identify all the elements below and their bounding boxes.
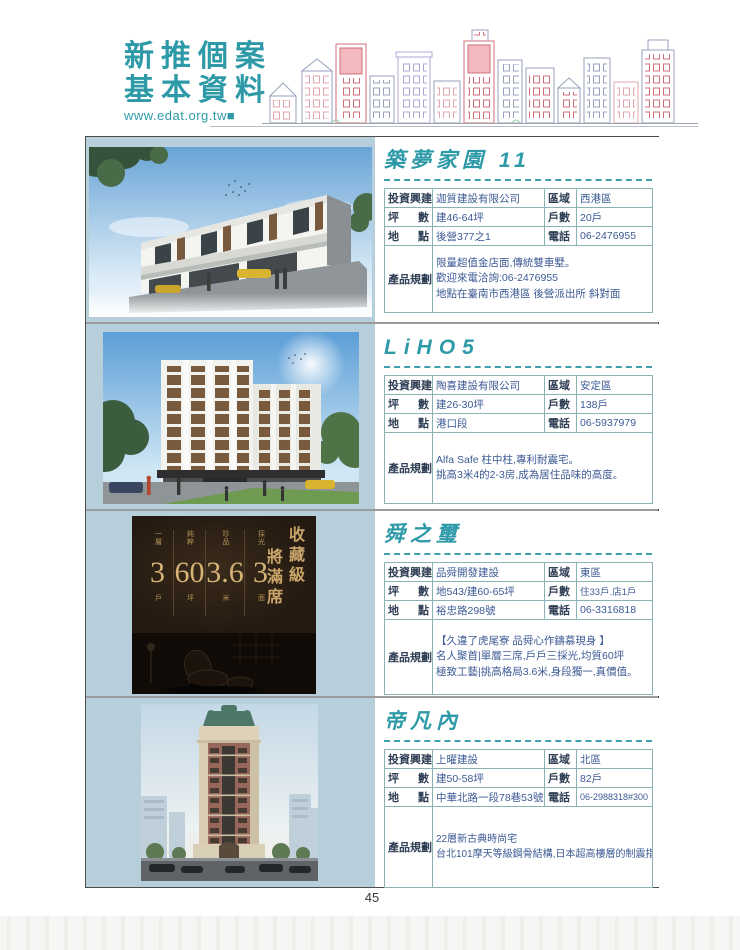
label-units: 戶數 — [545, 208, 577, 227]
listing-row-3: 收藏級 將滿席 一層 3 戶 純粹 60 坪 — [86, 511, 658, 698]
value-phone: 06-2476955 — [577, 227, 653, 246]
label-phone: 電話 — [545, 414, 577, 433]
label-region: 區域 — [545, 189, 577, 208]
plan-line: Alfa Safe 柱中柱,專利耐震宅。 — [436, 453, 649, 469]
stat-label-bottom: 戶 — [153, 594, 163, 616]
value-phone: 06-2988318#300 — [577, 788, 653, 807]
label-size2: 數 — [418, 209, 429, 225]
listing-photo-panel-4 — [86, 698, 375, 887]
label-size2: 數 — [418, 770, 429, 786]
value-location: 裕忠路298號 — [433, 601, 545, 620]
plan-line: 極致工藝|挑高格局3.6米,身段獨一,真價值。 — [436, 665, 649, 681]
listing-spec-table: 投資興建 上曜建設 區域 北區 坪數 建50-58坪 戶數 82戶 地點 中華北… — [384, 749, 653, 888]
stat-number: 3.6 — [206, 552, 244, 594]
townhouse-rendering-photo — [89, 147, 372, 317]
label-location2: 點 — [418, 602, 429, 618]
listing-row-4: 帝凡內 投資興建 上曜建設 區域 北區 坪數 建50-58坪 戶數 82戶 地點 — [86, 698, 658, 887]
apartment-rendering-photo — [103, 332, 359, 504]
poster-stat: 一層 3 戶 — [142, 530, 173, 616]
value-size: 建26-30坪 — [433, 395, 545, 414]
value-builder: 品舜開發建設 — [433, 563, 545, 582]
property-ad-poster: 收藏級 將滿席 一層 3 戶 純粹 60 坪 — [132, 516, 316, 694]
listing-photo-panel-1 — [86, 137, 375, 322]
label-plan: 產品規劃 — [385, 807, 433, 888]
label-size: 坪 — [388, 396, 399, 412]
listing-photo-panel-3: 收藏級 將滿席 一層 3 戶 純粹 60 坪 — [86, 511, 375, 696]
page-title: 新推個案 基本資料 — [124, 40, 272, 108]
value-size: 建50-58坪 — [433, 769, 545, 788]
value-region: 安定區 — [577, 376, 653, 395]
listing-row-1: 築夢家園 11 投資興建 迦質建設有限公司 區域 西港區 坪數 建46-64坪 … — [86, 137, 658, 324]
value-plan: 限量超值金店面,傳統雙車墅。 歡迎來電洽詢:06-2476955 地點在臺南市西… — [433, 246, 653, 313]
plan-line: 名人聚首|單層三席,戶戶三採光,均質60坪 — [436, 649, 649, 665]
value-location: 中華北路一段78巷53號 — [433, 788, 545, 807]
label-phone: 電話 — [545, 788, 577, 807]
label-phone: 電話 — [545, 227, 577, 246]
tower-rendering-photo — [141, 704, 318, 881]
value-units: 住33戶.店1戶 — [577, 582, 653, 601]
label-region: 區域 — [545, 750, 577, 769]
poster-stat: 純粹 60 坪 — [173, 530, 205, 616]
listing-title: 築夢家園 11 — [384, 150, 653, 172]
value-plan: 22層新古典時尚宅 台北101摩天等級鋼骨結構,日本超高樓層的制震指標,原裝進口… — [433, 807, 653, 888]
stat-label-top: 一層 — [153, 530, 163, 552]
title-divider — [384, 740, 652, 742]
plan-line: 限量超值金店面,傳統雙車墅。 — [436, 256, 649, 272]
label-location2: 點 — [418, 415, 429, 431]
stat-label-top: 珍品 — [220, 530, 230, 552]
value-builder: 迦質建設有限公司 — [433, 189, 545, 208]
poster-stat: 珍品 3.6 米 — [205, 530, 244, 616]
value-phone: 06-5937979 — [577, 414, 653, 433]
stat-number: 3 — [253, 552, 268, 594]
value-builder: 陶喜建設有限公司 — [433, 376, 545, 395]
value-location: 後營377之1 — [433, 227, 545, 246]
poster-stat: 採光 3 面 — [244, 530, 276, 616]
value-plan: 【久違了虎尾寮 品舜心作鑄慕現身 】 名人聚首|單層三席,戶戶三採光,均質60坪… — [433, 620, 653, 695]
website-url: www.edat.org.tw■ — [124, 108, 235, 123]
value-region: 東區 — [577, 563, 653, 582]
listing-title: 舜之璽 — [384, 524, 653, 546]
listing-photo-panel-2 — [86, 324, 375, 509]
listing-title: 帝凡內 — [384, 711, 653, 733]
label-units: 戶數 — [545, 769, 577, 788]
stat-label-bottom: 米 — [220, 594, 230, 616]
listing-info-1: 築夢家園 11 投資興建 迦質建設有限公司 區域 西港區 坪數 建46-64坪 … — [375, 137, 663, 322]
label-units: 戶數 — [545, 395, 577, 414]
label-location2: 點 — [418, 228, 429, 244]
paper-texture-band — [0, 916, 740, 950]
label-size: 坪 — [388, 209, 399, 225]
value-builder: 上曜建設 — [433, 750, 545, 769]
value-units: 82戶 — [577, 769, 653, 788]
page-number: 45 — [85, 890, 659, 905]
value-location: 港口段 — [433, 414, 545, 433]
plan-line: 22層新古典時尚宅 — [436, 832, 649, 847]
poster-headline-1: 收藏級 — [282, 526, 306, 586]
listing-spec-table: 投資興建 陶喜建設有限公司 區域 安定區 坪數 建26-30坪 戶數 138戶 … — [384, 375, 653, 504]
label-region: 區域 — [545, 563, 577, 582]
plan-line: 【久違了虎尾寮 品舜心作鑄慕現身 】 — [436, 634, 649, 650]
poster-stats: 一層 3 戶 純粹 60 坪 珍品 3.6 米 — [142, 530, 276, 616]
listing-info-2: LiHO5 投資興建 陶喜建設有限公司 區域 安定區 坪數 建26-30坪 戶數… — [375, 324, 663, 509]
listing-info-3: 舜之璽 投資興建 品舜開發建設 區域 東區 坪數 地543/建60-65坪 戶數… — [375, 511, 663, 696]
listing-title: LiHO5 — [384, 337, 653, 359]
label-builder: 投資興建 — [385, 750, 433, 769]
plan-line: 歡迎來電洽詢:06-2476955 — [436, 271, 649, 287]
label-size: 坪 — [388, 583, 399, 599]
stat-number: 60 — [175, 552, 205, 594]
label-location: 地 — [388, 415, 399, 431]
stat-label-bottom: 坪 — [185, 594, 195, 616]
poster-photo-section: 品舜之璽 虎尾寮 開箱落成|品舜建設| — [132, 633, 316, 694]
label-plan: 產品規劃 — [385, 620, 433, 695]
listing-spec-table: 投資興建 品舜開發建設 區域 東區 坪數 地543/建60-65坪 戶數 住33… — [384, 562, 653, 695]
value-units: 20戶 — [577, 208, 653, 227]
plan-line: 挑高3米4的2-3房,成為居住品味的高度。 — [436, 468, 649, 484]
label-size2: 數 — [418, 583, 429, 599]
title-divider — [384, 366, 652, 368]
poster-top-section: 收藏級 將滿席 一層 3 戶 純粹 60 坪 — [132, 516, 316, 633]
header-divider — [210, 126, 698, 127]
page-title-line2: 基本資料 — [124, 74, 272, 108]
label-builder: 投資興建 — [385, 563, 433, 582]
label-plan: 產品規劃 — [385, 246, 433, 313]
label-region: 區域 — [545, 376, 577, 395]
listing-info-4: 帝凡內 投資興建 上曜建設 區域 北區 坪數 建50-58坪 戶數 82戶 地點 — [375, 698, 663, 887]
plan-line: 台北101摩天等級鋼骨結構,日本超高樓層的制震指標,原裝進口新日鐵制震器與日立H… — [436, 847, 649, 862]
label-location: 地 — [388, 602, 399, 618]
label-location2: 點 — [418, 789, 429, 805]
label-location: 地 — [388, 228, 399, 244]
value-region: 北區 — [577, 750, 653, 769]
label-plan: 產品規劃 — [385, 433, 433, 504]
label-builder: 投資興建 — [385, 189, 433, 208]
value-region: 西港區 — [577, 189, 653, 208]
label-size2: 數 — [418, 396, 429, 412]
page-title-line1: 新推個案 — [124, 40, 272, 74]
value-size: 建46-64坪 — [433, 208, 545, 227]
value-plan: Alfa Safe 柱中柱,專利耐震宅。 挑高3米4的2-3房,成為居住品味的高… — [433, 433, 653, 504]
label-units: 戶數 — [545, 582, 577, 601]
stat-label-bottom: 面 — [256, 594, 266, 616]
city-skyline-illustration — [262, 26, 698, 128]
stat-label-top: 純粹 — [185, 530, 195, 552]
label-phone: 電話 — [545, 601, 577, 620]
stat-number: 3 — [150, 552, 165, 594]
listing-spec-table: 投資興建 迦質建設有限公司 區域 西港區 坪數 建46-64坪 戶數 20戶 地… — [384, 188, 653, 313]
stat-label-top: 採光 — [256, 530, 266, 552]
value-phone: 06-3316818 — [577, 601, 653, 620]
title-divider — [384, 553, 652, 555]
label-builder: 投資興建 — [385, 376, 433, 395]
label-size: 坪 — [388, 770, 399, 786]
value-size: 地543/建60-65坪 — [433, 582, 545, 601]
plan-line: 地點在臺南市西港區 後營派出所 斜對面 — [436, 287, 649, 303]
listings-container: 築夢家園 11 投資興建 迦質建設有限公司 區域 西港區 坪數 建46-64坪 … — [85, 136, 659, 888]
label-location: 地 — [388, 789, 399, 805]
value-units: 138戶 — [577, 395, 653, 414]
title-divider — [384, 179, 652, 181]
listing-row-2: LiHO5 投資興建 陶喜建設有限公司 區域 安定區 坪數 建26-30坪 戶數… — [86, 324, 658, 511]
